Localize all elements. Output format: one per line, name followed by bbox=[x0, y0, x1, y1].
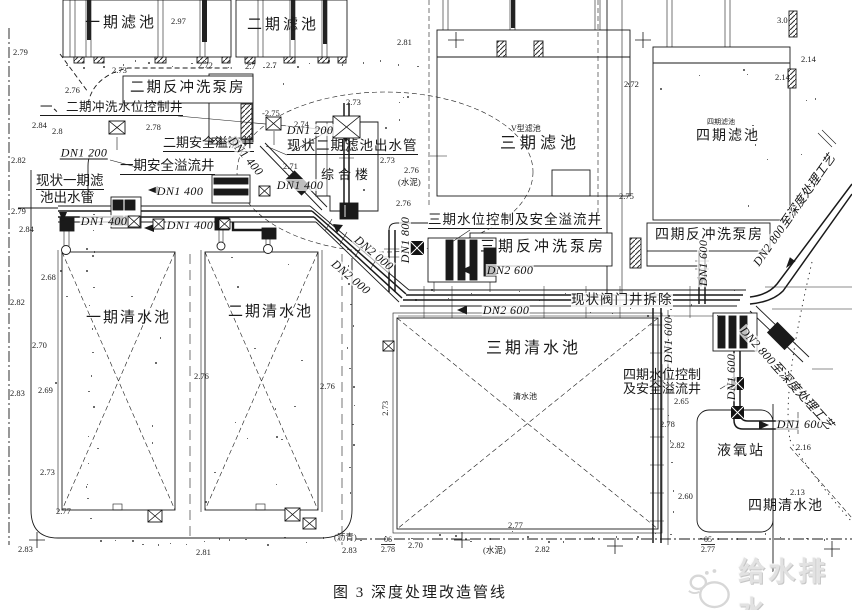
survey-dot bbox=[92, 255, 94, 257]
survey-dot bbox=[152, 442, 154, 444]
survey-dot bbox=[431, 289, 433, 291]
survey-dot bbox=[235, 422, 237, 424]
label-filter2: 二期滤池 bbox=[247, 18, 319, 34]
survey-dot bbox=[470, 541, 472, 543]
survey-dot bbox=[267, 544, 269, 546]
label-clearwater3: 三期清水池 bbox=[486, 341, 581, 358]
survey-dot bbox=[385, 127, 387, 129]
spot-elevation: 2.16 bbox=[796, 443, 811, 452]
spot-elevation: 2.82 bbox=[535, 545, 550, 554]
survey-dot bbox=[363, 189, 365, 191]
spot-elevation: -2.75 bbox=[262, 109, 280, 118]
survey-dot bbox=[628, 83, 630, 85]
survey-dot bbox=[204, 541, 206, 543]
spot-elevation: 2.78 bbox=[660, 420, 675, 429]
survey-dot bbox=[700, 538, 702, 540]
survey-dot bbox=[399, 102, 401, 104]
survey-dot bbox=[306, 542, 308, 544]
survey-dot bbox=[660, 88, 662, 90]
survey-dot bbox=[275, 408, 277, 410]
survey-dot bbox=[92, 328, 94, 330]
survey-dot bbox=[671, 462, 673, 464]
survey-dot bbox=[671, 390, 673, 392]
survey-dot bbox=[301, 360, 303, 362]
survey-dot bbox=[135, 60, 137, 62]
spot-elevation: 2.14 bbox=[801, 55, 816, 64]
spot-elevation: 2.68 bbox=[41, 273, 56, 282]
spot-elevation: 2.73 bbox=[40, 468, 55, 477]
survey-dot bbox=[283, 83, 285, 85]
survey-dot bbox=[345, 170, 347, 172]
pipe-label: DN1 400 bbox=[80, 215, 128, 227]
spot-elevation: 2.84 bbox=[32, 121, 47, 130]
survey-dot bbox=[563, 541, 565, 543]
spot-elevation: 2.81 bbox=[196, 548, 211, 557]
spot-elevation: 2.71 bbox=[283, 162, 298, 171]
surface-note: (沥青) bbox=[334, 533, 357, 542]
survey-dot bbox=[186, 544, 188, 546]
survey-dot bbox=[743, 69, 745, 71]
label-backwash-ph3: 三期反冲洗泵房 bbox=[480, 240, 606, 256]
survey-dot bbox=[748, 205, 750, 207]
callout-overflow-ph1: 一期安全溢流井 bbox=[120, 159, 215, 175]
survey-dot bbox=[103, 66, 105, 68]
survey-dot bbox=[297, 66, 299, 68]
label-filter3: 三期滤池 bbox=[500, 136, 580, 153]
cad-linework bbox=[0, 0, 852, 610]
spot-elevation: 2.76 bbox=[396, 199, 411, 208]
survey-dot bbox=[353, 386, 355, 388]
survey-dot bbox=[455, 535, 457, 537]
callout-valve-demolish: 现状阀门井拆除 bbox=[571, 293, 673, 307]
survey-dot bbox=[490, 538, 492, 540]
watermark-logo bbox=[686, 565, 735, 610]
survey-dot bbox=[219, 538, 221, 540]
survey-dot bbox=[415, 299, 417, 301]
survey-dot bbox=[132, 540, 134, 542]
callout-outlet-ph1-line2: 池出水管 bbox=[40, 191, 94, 205]
survey-dot bbox=[519, 291, 521, 293]
survey-dot bbox=[718, 538, 720, 540]
survey-dot bbox=[352, 424, 354, 426]
survey-dot bbox=[309, 63, 311, 65]
callout-ctrl-ph3: 三期水位控制及安全溢流井 bbox=[428, 213, 602, 229]
survey-dot bbox=[191, 63, 193, 65]
spot-elevation: 2.82 bbox=[670, 441, 685, 450]
figure-caption: 图 3 深度处理改造管线 bbox=[333, 581, 507, 602]
label-lox-station: 液氧站 bbox=[717, 445, 765, 460]
survey-dot bbox=[565, 293, 567, 295]
survey-dot bbox=[612, 313, 614, 315]
survey-dot bbox=[699, 75, 701, 77]
watermark: 给水排水 bbox=[686, 550, 852, 610]
survey-dot bbox=[824, 539, 826, 541]
elevation-fraction: 062.78 bbox=[381, 535, 395, 554]
spot-elevation: 2.81 bbox=[397, 38, 412, 47]
survey-dot bbox=[637, 536, 639, 538]
spot-elevation: 2.76 bbox=[404, 166, 419, 175]
survey-dot bbox=[205, 61, 207, 63]
survey-dot bbox=[407, 96, 409, 98]
spot-elevation: 2.79 bbox=[13, 48, 28, 57]
survey-dot bbox=[673, 490, 675, 492]
spot-elevation: 2.69 bbox=[38, 386, 53, 395]
drawing-canvas: 一期滤池 二期滤池 V型滤池 三期滤池 四期滤池 四期滤池 二期反冲洗泵房 三期… bbox=[0, 0, 852, 610]
survey-dot bbox=[590, 312, 592, 314]
survey-dot bbox=[801, 154, 803, 156]
spot-elevation: 2.70 bbox=[32, 341, 47, 350]
pipe-label: DN1 600 bbox=[697, 239, 709, 287]
survey-dot bbox=[328, 60, 330, 62]
survey-dot bbox=[809, 184, 811, 186]
survey-dot bbox=[655, 533, 657, 535]
spot-elevation: 2.60 bbox=[678, 492, 693, 501]
survey-dot bbox=[752, 140, 754, 142]
spot-elevation: 2.77 bbox=[508, 521, 523, 530]
callout-well-ph12: 一、二期冲洗水位控制井 bbox=[40, 101, 183, 116]
survey-dot bbox=[93, 193, 95, 195]
spot-elevation: 2.83 bbox=[10, 389, 25, 398]
survey-dot bbox=[228, 67, 230, 69]
survey-dot bbox=[229, 539, 231, 541]
pipe-label: DN1 400 bbox=[166, 219, 214, 231]
label-clearwater4: 四期清水池 bbox=[748, 500, 823, 515]
survey-dot bbox=[548, 541, 550, 543]
survey-dot bbox=[90, 518, 92, 520]
label-clearwater1: 一期清水池 bbox=[86, 311, 171, 327]
survey-dot bbox=[417, 66, 419, 68]
survey-dot bbox=[347, 347, 349, 349]
spot-elevation: 2.84 bbox=[19, 225, 34, 234]
survey-dot bbox=[806, 100, 808, 102]
spot-elevation: 2.73 bbox=[346, 98, 361, 107]
survey-dot bbox=[231, 257, 233, 259]
spot-elevation: 2.72 bbox=[624, 80, 639, 89]
spot-elevation: 2.77 bbox=[56, 507, 71, 516]
spot-elevation: 2.75 bbox=[619, 192, 634, 201]
label-clearwater2: 二期清水池 bbox=[228, 305, 313, 321]
survey-dot bbox=[294, 406, 296, 408]
survey-dot bbox=[148, 62, 150, 64]
survey-dot bbox=[360, 540, 362, 542]
survey-dot bbox=[348, 283, 350, 285]
survey-dot bbox=[88, 463, 90, 465]
survey-dot bbox=[380, 60, 382, 62]
survey-dot bbox=[131, 296, 133, 298]
survey-dot bbox=[616, 536, 618, 538]
survey-dot bbox=[668, 339, 670, 341]
spot-elevation: 2.13 bbox=[790, 488, 805, 497]
survey-dot bbox=[254, 348, 256, 350]
spot-elevation: 2.73 bbox=[380, 156, 395, 165]
survey-dot bbox=[780, 537, 782, 539]
spot-elevation: 2.73 bbox=[381, 401, 390, 416]
survey-dot bbox=[350, 492, 352, 494]
survey-dot bbox=[747, 74, 749, 76]
survey-dot bbox=[88, 436, 90, 438]
survey-dot bbox=[276, 484, 278, 486]
spot-elevation: 2.14 bbox=[775, 73, 790, 82]
survey-dot bbox=[815, 98, 817, 100]
callout-outlet-ph2: 现状二期滤池出水管 bbox=[287, 139, 418, 155]
label-filter4-sub: 四期滤池 bbox=[707, 119, 735, 126]
survey-dot bbox=[276, 436, 278, 438]
survey-dot bbox=[349, 467, 351, 469]
survey-dot bbox=[93, 406, 95, 408]
survey-dot bbox=[403, 97, 405, 99]
survey-dot bbox=[349, 368, 351, 370]
survey-dot bbox=[348, 265, 350, 267]
survey-dot bbox=[399, 119, 401, 121]
survey-dot bbox=[670, 309, 672, 311]
survey-dot bbox=[66, 65, 68, 67]
survey-dot bbox=[87, 498, 89, 500]
survey-dot bbox=[86, 270, 88, 272]
survey-dot bbox=[667, 367, 669, 369]
spot-elevation: 2.65 bbox=[674, 397, 689, 406]
label-filter4: 四期滤池 bbox=[696, 130, 760, 145]
survey-dot bbox=[97, 448, 99, 450]
spot-elevation: 2.78 bbox=[146, 123, 161, 132]
pipe-label: DN2 600 bbox=[482, 304, 530, 316]
survey-dot bbox=[767, 159, 769, 161]
survey-dot bbox=[55, 382, 57, 384]
spot-elevation: 2.82 bbox=[10, 298, 25, 307]
survey-dot bbox=[86, 486, 88, 488]
spot-elevation: 2.79 bbox=[11, 207, 26, 216]
survey-dot bbox=[115, 540, 117, 542]
label-backwash-ph2: 二期反冲洗泵房 bbox=[130, 81, 246, 96]
survey-dot bbox=[88, 391, 90, 393]
survey-dot bbox=[592, 537, 594, 539]
spot-elevation: 2.83 bbox=[342, 546, 357, 555]
survey-dot bbox=[60, 270, 62, 272]
survey-dot bbox=[249, 64, 251, 66]
survey-dot bbox=[717, 315, 719, 317]
survey-dot bbox=[100, 540, 102, 542]
spot-elevation: 2.76 bbox=[320, 382, 335, 391]
survey-dot bbox=[93, 214, 95, 216]
pipe-label: DN1 400 bbox=[156, 185, 204, 197]
label-clearwater3-sub: 清水池 bbox=[513, 393, 537, 401]
callout-ctrl-ph4-line1: 四期水位控制 bbox=[623, 368, 701, 382]
survey-dot bbox=[281, 439, 283, 441]
pipe-label: DN1 200 bbox=[60, 147, 108, 160]
survey-dot bbox=[527, 536, 529, 538]
label-filter3-sub: V型滤池 bbox=[511, 125, 541, 133]
survey-dot bbox=[471, 293, 473, 295]
survey-dot bbox=[91, 375, 93, 377]
survey-dot bbox=[691, 304, 693, 306]
survey-dot bbox=[205, 501, 207, 503]
survey-dot bbox=[668, 415, 670, 417]
survey-dot bbox=[673, 511, 675, 513]
callout-ctrl-ph4-line2: 及安全溢流井 bbox=[623, 382, 701, 396]
survey-dot bbox=[291, 145, 293, 147]
spot-elevation: 2.97 bbox=[171, 17, 186, 26]
survey-dot bbox=[274, 66, 276, 68]
survey-dot bbox=[670, 534, 672, 536]
label-filter1: 一期滤池 bbox=[85, 16, 157, 32]
watermark-text: 给水排水 bbox=[738, 550, 852, 610]
spot-elevation: 2.82 bbox=[11, 156, 26, 165]
survey-dot bbox=[284, 537, 286, 539]
survey-dot bbox=[347, 150, 349, 152]
survey-dot bbox=[539, 300, 541, 302]
survey-dot bbox=[93, 287, 95, 289]
survey-dot bbox=[806, 538, 808, 540]
survey-dot bbox=[752, 125, 754, 127]
survey-dot bbox=[363, 62, 365, 64]
surface-note: (水泥) bbox=[483, 546, 506, 555]
survey-dot bbox=[160, 337, 162, 339]
spot-elevation: 2.73 bbox=[112, 66, 127, 75]
survey-dot bbox=[734, 290, 736, 292]
survey-dot bbox=[92, 352, 94, 354]
survey-dot bbox=[86, 248, 88, 250]
survey-dot bbox=[323, 537, 325, 539]
survey-dot bbox=[647, 315, 649, 317]
survey-dot bbox=[170, 543, 172, 545]
survey-dot bbox=[439, 534, 441, 536]
survey-dot bbox=[247, 438, 249, 440]
survey-dot bbox=[83, 67, 85, 69]
survey-dot bbox=[353, 444, 355, 446]
survey-dot bbox=[237, 286, 239, 288]
survey-dot bbox=[512, 531, 514, 533]
survey-dot bbox=[353, 325, 355, 327]
survey-dot bbox=[350, 304, 352, 306]
pipe-label: DN2 600 bbox=[486, 264, 534, 276]
survey-dot bbox=[172, 66, 174, 68]
pipe-label: DN1 800 bbox=[399, 216, 411, 264]
survey-dot bbox=[214, 472, 216, 474]
survey-dot bbox=[411, 538, 413, 540]
survey-dot bbox=[87, 484, 89, 486]
survey-dot bbox=[765, 533, 767, 535]
spot-elevation: 2.8 bbox=[52, 127, 63, 136]
spot-elevation: 2.83 bbox=[18, 545, 33, 554]
spot-elevation: 2.76 bbox=[65, 86, 80, 95]
survey-dot bbox=[123, 64, 125, 66]
surface-note: (水泥) bbox=[398, 178, 421, 187]
survey-dot bbox=[66, 296, 68, 298]
survey-dot bbox=[630, 308, 632, 310]
survey-dot bbox=[737, 538, 739, 540]
survey-dot bbox=[385, 536, 387, 538]
survey-dot bbox=[497, 307, 499, 309]
spot-elevation: 2.74 bbox=[294, 120, 309, 129]
survey-dot bbox=[155, 362, 157, 364]
survey-dot bbox=[94, 251, 96, 253]
survey-dot bbox=[398, 64, 400, 66]
survey-dot bbox=[448, 298, 450, 300]
pipe-label: DN1 400 bbox=[276, 179, 324, 191]
survey-dot bbox=[93, 175, 95, 177]
spot-elevation: 3.0 bbox=[777, 16, 788, 25]
survey-dot bbox=[354, 405, 356, 407]
spot-elevation: 2.70 bbox=[408, 541, 423, 550]
survey-dot bbox=[89, 305, 91, 307]
survey-dot bbox=[142, 544, 144, 546]
survey-dot bbox=[93, 230, 95, 232]
survey-dot bbox=[342, 64, 344, 66]
survey-dot bbox=[158, 544, 160, 546]
survey-dot bbox=[245, 539, 247, 541]
survey-dot bbox=[668, 315, 670, 317]
spot-elevation: 2.76 bbox=[194, 372, 209, 381]
pipe-label: DN1 600 bbox=[725, 353, 737, 401]
survey-dot bbox=[263, 67, 265, 69]
survey-dot bbox=[152, 425, 154, 427]
survey-dot bbox=[288, 264, 290, 266]
survey-dot bbox=[755, 144, 757, 146]
survey-dot bbox=[670, 440, 672, 442]
